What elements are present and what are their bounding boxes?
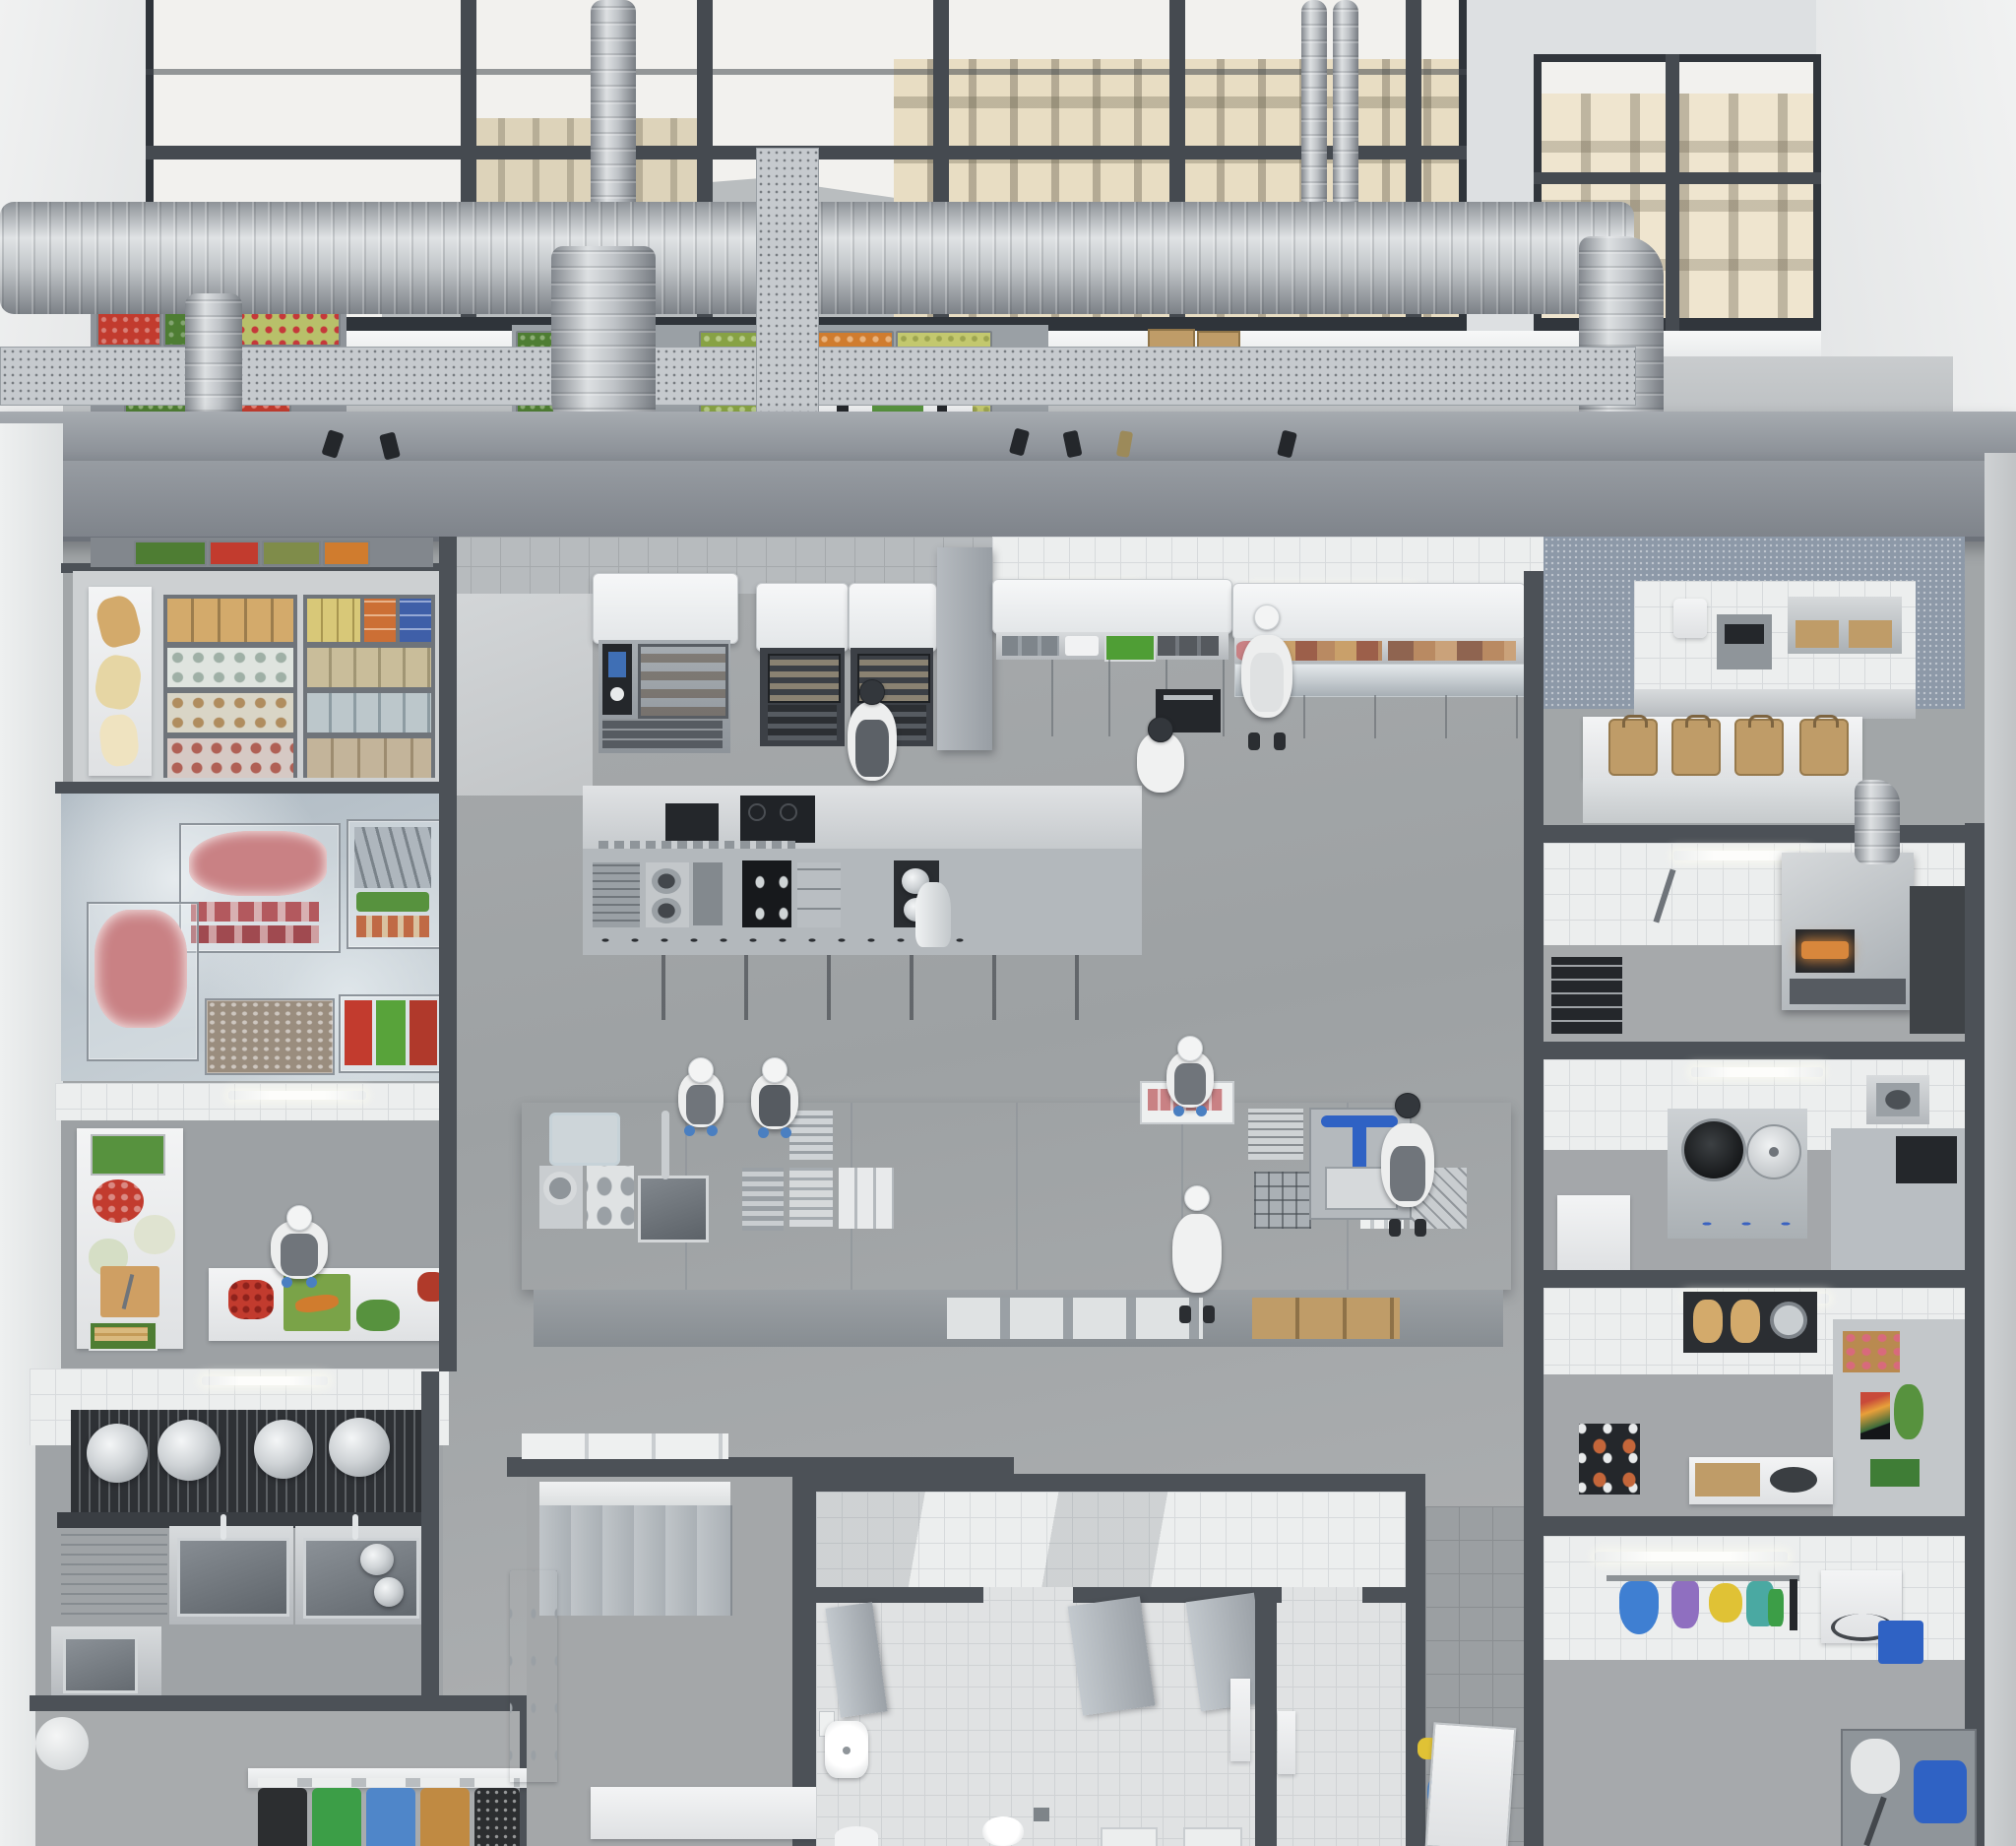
locker-door (634, 1505, 667, 1616)
island-north-top (583, 786, 1142, 849)
window-mullion (1666, 54, 1679, 333)
concrete-beam-lower (0, 461, 2016, 541)
rack-jars2 (167, 693, 293, 732)
griddle (593, 862, 640, 927)
hob-burner (748, 803, 766, 821)
kraft-board (1695, 1463, 1760, 1496)
cucumber-pile (356, 1300, 400, 1331)
hall-floor-marble-corridor (445, 589, 593, 796)
freezer-basket-meat (179, 823, 341, 953)
wall-dispenser (1230, 1679, 1250, 1761)
wok-room-north-wall (1543, 1042, 1984, 1059)
pastry-room-north-wall (1543, 1270, 1984, 1288)
far-right-strip (1984, 453, 2016, 1846)
induction-hob (665, 803, 719, 843)
potwash-light (202, 1376, 328, 1385)
pizza-oven-glow (1801, 941, 1849, 959)
ceiling-pipe (591, 0, 636, 215)
bread-slicer (1683, 1292, 1817, 1353)
french-top-ring (652, 898, 681, 923)
cleaning-apron-blue (1619, 1581, 1659, 1634)
recycle-bin-black (258, 1788, 307, 1846)
napkin-station (1788, 597, 1902, 654)
mop-trolley (1841, 1729, 1977, 1846)
baguette-box (89, 1321, 157, 1351)
takeaway-bag (1799, 719, 1849, 776)
leaning-board (1425, 1722, 1517, 1846)
waste-area-wall (30, 1695, 537, 1711)
wok-corner-sink (1866, 1075, 1929, 1124)
bread-bag (97, 713, 140, 768)
flat-plate (693, 862, 723, 925)
plating-counter-canopy (992, 579, 1232, 634)
concrete-column (937, 547, 992, 750)
wc-toilet (835, 1826, 878, 1846)
small-pot (374, 1577, 404, 1607)
napkin-kraft (1795, 620, 1839, 648)
deli-containers2 (1388, 641, 1516, 661)
pizza-room-north-wall (1543, 825, 1984, 843)
slicer-bowl (543, 1172, 577, 1205)
red-peppers (228, 1280, 274, 1319)
under-boxes (1252, 1298, 1400, 1339)
right-stack-west-wall (1524, 571, 1543, 1846)
freezer-basket-shrimp (205, 998, 335, 1075)
greens-crate (91, 1134, 165, 1176)
bake-oven (760, 648, 845, 746)
packing-counter (1634, 689, 1916, 719)
sink-bowl (177, 1538, 289, 1617)
frozen-meat-small (191, 902, 319, 922)
plant (1894, 1384, 1923, 1439)
person-prep-cook-3 (1162, 1034, 1219, 1113)
crate-mini-olive (262, 541, 321, 566)
island-under-shelf (583, 955, 1142, 1020)
small-pot (360, 1544, 394, 1575)
sink-drain (843, 1747, 850, 1754)
baguettes (94, 1327, 148, 1341)
corrugated-rack (742, 1168, 784, 1231)
frozen-meat-small (191, 925, 319, 943)
greens-tray (1870, 1459, 1920, 1487)
locker-door (697, 1505, 732, 1616)
person-hotline-chef (843, 677, 902, 788)
person-prep-cook-2 (746, 1055, 803, 1134)
pizza-side-counter (1910, 886, 1965, 1034)
trolley-bucket-white (1851, 1739, 1900, 1794)
carrot-sticks (294, 1293, 340, 1314)
stock-pot (329, 1418, 390, 1477)
oven-glow-door (768, 654, 841, 703)
coffee-urn (915, 882, 951, 947)
shower-tray (1183, 1827, 1242, 1846)
drainboard (61, 1528, 167, 1623)
induction-hob-large (740, 796, 815, 843)
blue-crate (1878, 1621, 1923, 1664)
potwash-east-wall (421, 1371, 439, 1703)
mop-handle (1863, 1797, 1886, 1846)
bag-handle (1622, 715, 1648, 728)
squeegee (1790, 1579, 1797, 1630)
takeaway-bag (1671, 719, 1721, 776)
stock-pot (157, 1420, 220, 1481)
storage-rack-a (163, 595, 297, 778)
bread-bag (94, 593, 144, 650)
corner-sink-low (51, 1626, 161, 1703)
locker-door (602, 1505, 636, 1616)
knife (122, 1274, 135, 1309)
lid-knob (1769, 1147, 1779, 1157)
combi-oven (598, 640, 730, 753)
packing-room (1634, 581, 1916, 691)
frozen-peppers (345, 1000, 372, 1065)
cleaning-bottle-green (1768, 1589, 1784, 1626)
person-plating-chef (1132, 715, 1189, 797)
wok-knobs (1679, 1215, 1797, 1229)
pot-rack (71, 1410, 423, 1512)
bag-handle (1748, 715, 1774, 728)
frozen-fish (354, 827, 431, 888)
combi-door-glass (638, 644, 728, 719)
recycle-bin-tan (420, 1788, 470, 1846)
recycle-bin-green (312, 1788, 361, 1846)
cutting-board-knife (100, 1266, 159, 1317)
stock-pot (254, 1420, 313, 1479)
island-south-equipment (583, 849, 1142, 955)
faucet (220, 1514, 226, 1540)
faucet (352, 1514, 358, 1540)
person-prep-cook-1 (674, 1055, 727, 1132)
tomato-bowl (93, 1179, 144, 1223)
rack-tubs (307, 648, 431, 687)
freezer-walls (55, 782, 449, 794)
wok-range (1668, 1109, 1807, 1239)
hall-white-cabinets (522, 1433, 728, 1459)
vegprep-north-wall (55, 1083, 449, 1120)
sink-bowl (1876, 1083, 1920, 1116)
recycle-bin-black2 (474, 1788, 520, 1846)
shower-tray (1101, 1827, 1158, 1846)
fish-garnish (356, 892, 429, 912)
rack-yellow-packs (307, 599, 360, 642)
pastry-center-counter (1689, 1457, 1833, 1504)
wc-sink (825, 1721, 868, 1778)
gn-containers (839, 1168, 894, 1229)
prep-table-under-shelf (534, 1290, 1503, 1347)
takeaway-bag (1608, 719, 1658, 776)
microwave (1896, 1136, 1957, 1183)
frozen-meat (94, 910, 187, 1028)
bread-loaf (1731, 1300, 1760, 1343)
herb-bin (1104, 634, 1156, 662)
storage-rack-b (303, 595, 435, 778)
bake-oven-hood (849, 583, 937, 652)
wall-dispenser (1278, 1711, 1295, 1774)
right-stack-east-wall (1965, 823, 1984, 1846)
cleaning-room-light (1595, 1552, 1788, 1561)
shelf-gn-pans (1002, 636, 1059, 656)
rack-tubs3 (307, 738, 431, 778)
paper-towel-dispenser (1673, 599, 1707, 638)
pizza-oven-stand (1790, 979, 1906, 1004)
slicer-blade (1770, 1302, 1807, 1339)
utensil-rack (1551, 957, 1622, 1034)
person-scale-worker (1376, 1091, 1439, 1237)
wc-east-wall (1406, 1492, 1425, 1846)
menu-board (1579, 1424, 1640, 1495)
knob-strip (591, 933, 965, 947)
menu-display (1860, 1392, 1890, 1439)
wok-lid (1746, 1124, 1801, 1179)
takeaway-front-fascia (1583, 778, 1862, 823)
vegprep-l-counter (77, 1128, 183, 1349)
wc-upper-wallband (816, 1492, 1406, 1587)
person-cold-counter-chef (1236, 603, 1297, 750)
tray-slots (768, 705, 837, 740)
veg-slicer (539, 1166, 583, 1229)
wc-vertical-wall (1255, 1587, 1277, 1846)
pot-sink (295, 1526, 421, 1624)
bake-oven-hood (756, 583, 849, 652)
wc-toilet (982, 1816, 1024, 1846)
napkin-kraft (1849, 620, 1892, 648)
window-transom (1534, 172, 1821, 184)
pizza-chimney (1855, 780, 1900, 864)
person-veg-prep-worker (266, 1203, 333, 1284)
counter-hole (1770, 1467, 1817, 1493)
wc-inner-wall (816, 1587, 983, 1603)
frozen-shrimp-row (356, 916, 429, 937)
bag-handle (1813, 715, 1839, 728)
cauliflower (134, 1215, 175, 1254)
toaster-slot (1725, 624, 1764, 644)
rack-flour-bags (167, 599, 293, 642)
frozen-peas (376, 1000, 406, 1065)
locker-cabinet (510, 1570, 557, 1782)
vegprep-light (228, 1091, 366, 1100)
bread-bag (93, 653, 145, 713)
plating-counter-shelf (996, 632, 1228, 660)
bag-handle (1685, 715, 1711, 728)
left-rooms-east-wall (439, 537, 457, 1371)
person-table-chef (1167, 1183, 1227, 1323)
wok-cabinet (1557, 1195, 1630, 1270)
rack-blue-packs (400, 599, 431, 642)
recycle-bin-blue (366, 1788, 415, 1846)
freezer-basket-meat2 (87, 902, 199, 1061)
tray-stack2 (789, 1168, 833, 1227)
locker-bank (539, 1482, 730, 1623)
rack-preserves (167, 738, 293, 778)
under-bins (947, 1298, 1203, 1339)
open-burners (742, 860, 791, 927)
rack-orange-packs (364, 599, 396, 642)
crate-mini-orange (323, 541, 370, 566)
shelf-cloth (1065, 636, 1099, 656)
wok-pan (1681, 1118, 1746, 1181)
pizza-oven-mouth (1795, 929, 1855, 973)
wok-side-counter (1831, 1128, 1965, 1270)
inset-oven-handle (1164, 695, 1213, 700)
takeaway-bag (1734, 719, 1784, 776)
french-tops (646, 862, 689, 927)
frozen-peppers2 (409, 1000, 437, 1065)
french-top-ring (652, 868, 681, 894)
double-sink (169, 1526, 293, 1624)
table-faucet (661, 1111, 669, 1179)
freezer-basket-fish (346, 819, 443, 949)
donut-tray (1843, 1331, 1900, 1372)
sink-bowl (63, 1636, 138, 1693)
crate-mini-greens (134, 541, 207, 566)
dish-bowl (35, 1717, 89, 1770)
wok-room-light (1691, 1067, 1823, 1077)
stock-pot (87, 1424, 148, 1483)
upper-shelf-crates (91, 538, 433, 567)
window-pane-divider (146, 69, 1467, 75)
hob-burner (780, 803, 797, 821)
shower-partition (1068, 1596, 1156, 1715)
trolley-bucket-blue (1914, 1760, 1967, 1823)
combi-control-panel (602, 644, 632, 715)
cleaning-room-north-wall (1524, 1516, 1984, 1536)
combi-dial (610, 687, 624, 701)
freezer-basket-veg (339, 994, 445, 1073)
kitchen-cutaway-render (0, 0, 2016, 1846)
crate-mini-tomato (209, 541, 260, 566)
bin-label-strip (258, 1778, 520, 1787)
bread-loaf (1693, 1300, 1723, 1343)
concrete-beam-upper (0, 412, 2016, 468)
table-sink (638, 1176, 709, 1242)
slot-rack (1254, 1172, 1311, 1229)
locker-door (665, 1505, 699, 1616)
frozen-meat (189, 831, 327, 896)
combi-oven-hood (593, 573, 738, 644)
utensil-tray (1248, 1109, 1303, 1160)
combi-stand (602, 719, 723, 748)
floor-drain (1034, 1808, 1049, 1821)
four-ring-unit (587, 1166, 634, 1229)
wc-inner-wall (1362, 1587, 1406, 1603)
pastry-right-counter (1833, 1319, 1965, 1522)
toaster-unit (1717, 614, 1772, 669)
clear-tub (549, 1113, 620, 1166)
pizza-oven (1782, 853, 1914, 1010)
bread-shelf (89, 587, 152, 776)
plating-counter-body (996, 660, 1228, 736)
sink-bowl (303, 1538, 419, 1619)
rack-jars (167, 648, 293, 687)
cleaning-sponge-yellow (1709, 1583, 1742, 1623)
cleaning-cloth-purple (1671, 1581, 1699, 1628)
combi-display (608, 652, 626, 677)
side-shelf-unit (797, 862, 841, 927)
dark-trays (1158, 636, 1219, 656)
locker-top (539, 1482, 730, 1505)
wc-north-wall (816, 1474, 1425, 1492)
rack-tubs2 (307, 693, 431, 732)
locker-door (571, 1505, 604, 1616)
